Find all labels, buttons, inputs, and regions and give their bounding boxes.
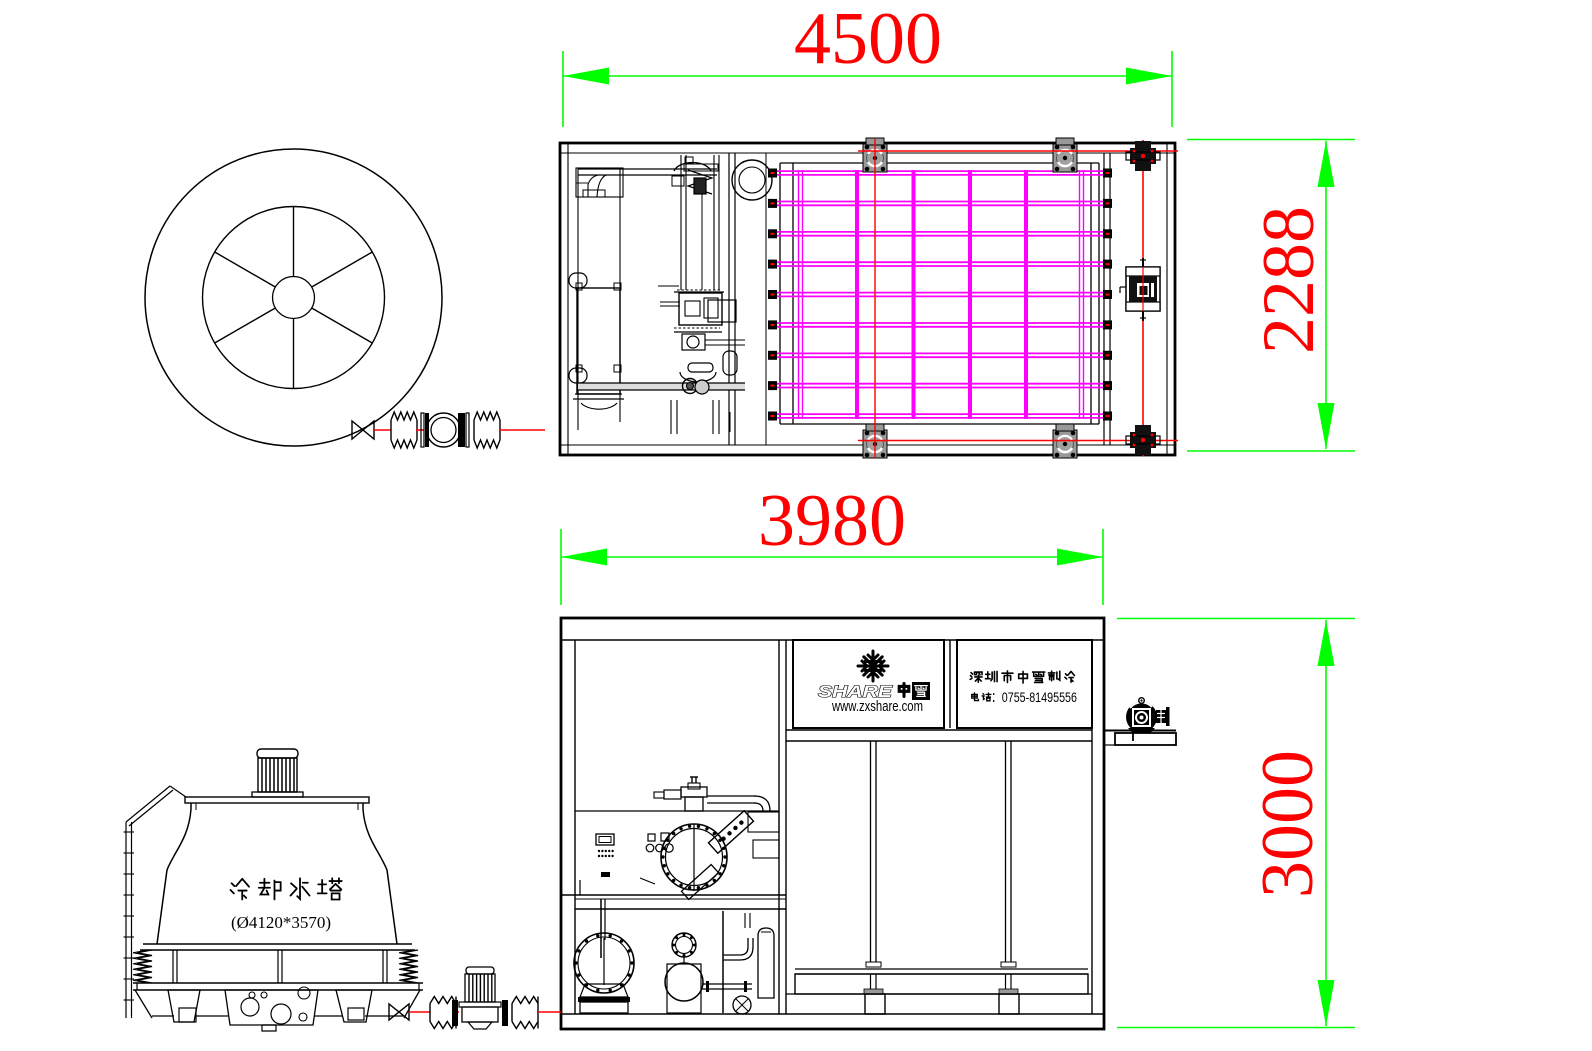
svg-text:(Ø4120*3570): (Ø4120*3570) <box>231 913 331 932</box>
svg-text:4500: 4500 <box>794 0 942 80</box>
svg-text:3980: 3980 <box>758 480 906 562</box>
svg-text:：0755-81495556: ：0755-81495556 <box>991 690 1077 705</box>
svg-text:3000: 3000 <box>1247 750 1329 898</box>
svg-text:www.zxshare.com: www.zxshare.com <box>831 699 923 715</box>
svg-text:2288: 2288 <box>1248 206 1330 354</box>
